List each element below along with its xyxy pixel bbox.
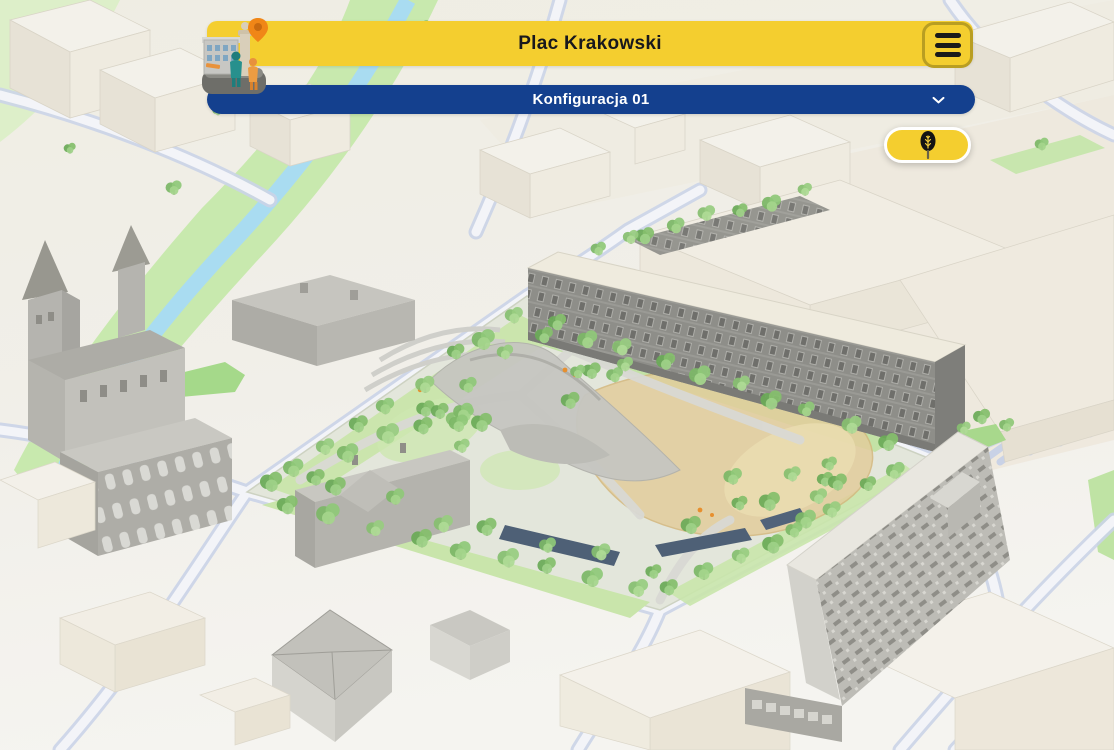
hamburger-menu-icon	[935, 30, 961, 59]
tree-icon	[916, 130, 940, 160]
3d-city-model-logo-icon	[202, 18, 268, 94]
app-root: Plac Krakowski	[0, 0, 1114, 750]
menu-button[interactable]	[922, 22, 973, 68]
app-logo	[196, 14, 282, 98]
configuration-selector[interactable]: Konfiguracja 01	[207, 85, 975, 114]
page-title: Plac Krakowski	[518, 33, 662, 55]
configuration-label: Konfiguracja 01	[532, 91, 649, 108]
app-header: Plac Krakowski	[207, 21, 973, 66]
chevron-down-icon	[932, 96, 945, 104]
vegetation-button[interactable]	[884, 127, 971, 163]
